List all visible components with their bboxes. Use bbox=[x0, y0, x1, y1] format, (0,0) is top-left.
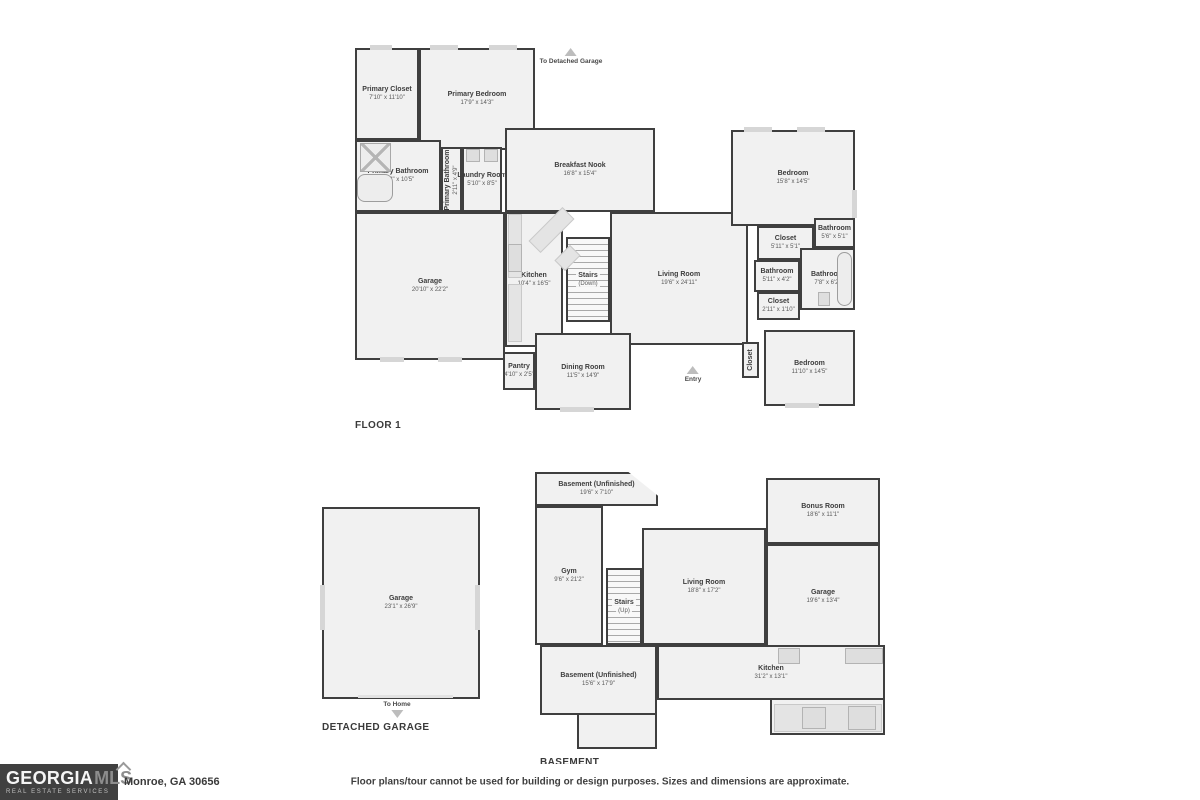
room-name-label: Primary Bedroom bbox=[448, 91, 507, 99]
room-breakfast-nook: Breakfast Nook16'8" x 15'4" bbox=[505, 128, 655, 212]
room-bathroom: Bathroom5'11" x 4'2" bbox=[754, 260, 800, 292]
room-name-label: Laundry Room bbox=[457, 172, 506, 180]
window-mark bbox=[560, 407, 594, 412]
room-name-label: Closet bbox=[775, 235, 796, 243]
room-name-label: Closet bbox=[768, 298, 789, 306]
room-pantry: Pantry4'10" x 2'5" bbox=[503, 352, 535, 390]
logo-text-georgia: GEORGIA bbox=[6, 769, 93, 787]
annotation-to-home: To Home bbox=[383, 701, 410, 718]
room-name-label: Kitchen bbox=[521, 272, 547, 280]
window-mark bbox=[320, 585, 325, 630]
door-line-fixture bbox=[358, 695, 453, 698]
room-dimensions-label: 11'5" x 14'9" bbox=[567, 373, 599, 380]
room-dimensions-label: 5'6" x 5'1" bbox=[821, 234, 847, 241]
appliance-fixture bbox=[802, 707, 826, 729]
room-dimensions-label: 7'10" x 11'10" bbox=[369, 95, 405, 102]
room-garage: Garage20'10" x 22'2" bbox=[355, 212, 505, 360]
window-mark bbox=[852, 190, 857, 218]
room-dimensions-label: 31'2" x 13'1" bbox=[755, 674, 788, 681]
room-dimensions-label: 5'11" x 5'1" bbox=[771, 244, 800, 251]
room-name-label: Living Room bbox=[658, 271, 700, 279]
appliance-fixture bbox=[508, 244, 522, 272]
room-bedroom: Bedroom15'8" x 14'5" bbox=[731, 130, 855, 226]
logo-subtitle: REAL ESTATE SERVICES bbox=[6, 789, 112, 795]
window-mark bbox=[438, 357, 462, 362]
annotation-entry: Entry bbox=[685, 366, 702, 383]
room-dimensions-label: 19'6" x 7'10" bbox=[580, 490, 613, 497]
room-name-label: Closet bbox=[746, 349, 754, 370]
room-basement-unfinished: Basement (Unfinished)19'6" x 7'10" bbox=[535, 472, 658, 506]
room-living-room: Living Room19'6" x 24'11" bbox=[610, 212, 748, 345]
room-dimensions-label: (Up) bbox=[616, 608, 632, 615]
room-name-label: Bathroom bbox=[818, 225, 851, 233]
room-dimensions-label: 19'6" x 24'11" bbox=[661, 280, 697, 287]
window-mark bbox=[785, 403, 819, 408]
room-name-label: Garage bbox=[418, 278, 442, 286]
room-name-label: Kitchen bbox=[758, 665, 784, 673]
room-dimensions-label: 18'8" x 17'2" bbox=[688, 588, 721, 595]
window-mark bbox=[475, 585, 480, 630]
room-closet: Closet2'11" x 1'10" bbox=[757, 292, 800, 320]
room-name-label: Gym bbox=[561, 568, 577, 576]
room-dimensions-label: 10'4" x 16'5" bbox=[518, 281, 551, 288]
room-primary-closet: Primary Closet7'10" x 11'10" bbox=[355, 48, 419, 140]
room-dimensions-label: 11'10" x 14'5" bbox=[792, 369, 828, 376]
room-name-label: Stairs bbox=[612, 599, 635, 607]
footer-bar: GEORGIA MLS REAL ESTATE SERVICES Monroe,… bbox=[0, 764, 1200, 800]
room-dimensions-label: 16'8" x 15'4" bbox=[564, 171, 597, 178]
room-dimensions-label: 5'10" x 8'5" bbox=[467, 181, 497, 188]
window-mark bbox=[380, 357, 404, 362]
appliance-fixture bbox=[818, 292, 830, 306]
room-name-label: Garage bbox=[389, 595, 413, 603]
floor-label-detached-garage: DETACHED GARAGE bbox=[322, 722, 429, 733]
georgia-mls-logo: GEORGIA MLS REAL ESTATE SERVICES bbox=[0, 764, 118, 800]
room-name-label: Primary Closet bbox=[362, 86, 411, 94]
floorplan-canvas: FLOOR 1Primary Closet7'10" x 11'10"Prima… bbox=[0, 0, 1200, 800]
up-arrow-icon bbox=[687, 366, 699, 374]
down-arrow-icon bbox=[391, 710, 403, 718]
room-name-label: Stairs bbox=[576, 272, 599, 280]
room-name-label: Garage bbox=[811, 589, 835, 597]
room-dimensions-label: 20'10" x 22'2" bbox=[412, 287, 448, 294]
appliance-fixture bbox=[778, 648, 800, 664]
room-name-label: Primary Bathroom bbox=[444, 149, 452, 210]
room-dining-room: Dining Room11'5" x 14'9" bbox=[535, 333, 631, 410]
window-mark bbox=[430, 45, 458, 50]
room-name-label: Bonus Room bbox=[801, 503, 845, 511]
room-name-label: Basement (Unfinished) bbox=[558, 481, 634, 489]
room-gym: Gym9'6" x 21'2" bbox=[535, 506, 603, 645]
room-basement-unfinished: Basement (Unfinished)15'6" x 17'9" bbox=[540, 645, 657, 715]
room-dimensions-label: 17'9" x 14'3" bbox=[461, 100, 494, 107]
room-name-label: Bathroom bbox=[760, 268, 793, 276]
up-arrow-icon bbox=[565, 48, 577, 56]
appliance-fixture bbox=[484, 149, 498, 162]
room-name-label: Dining Room bbox=[561, 364, 605, 372]
room-bathroom: Bathroom5'6" x 5'1" bbox=[814, 218, 855, 248]
window-mark bbox=[744, 127, 772, 132]
disclaimer-text: Floor plans/tour cannot be used for buil… bbox=[351, 777, 849, 788]
window-mark bbox=[489, 45, 517, 50]
property-address: Monroe, GA 30656 bbox=[124, 776, 220, 788]
room-name-label: Bedroom bbox=[778, 170, 809, 178]
room-name-label: Bedroom bbox=[794, 360, 825, 368]
tub-fixture bbox=[357, 174, 393, 202]
room-dimensions-label: 15'8" x 14'5" bbox=[777, 179, 810, 186]
annotation-text: To Detached Garage bbox=[540, 58, 603, 65]
room-name-label: Basement (Unfinished) bbox=[560, 672, 636, 680]
room-closet: Closet bbox=[742, 342, 759, 378]
room-name-label: Breakfast Nook bbox=[554, 162, 605, 170]
room-name-label: Pantry bbox=[508, 363, 530, 371]
room-dimensions-label: 15'6" x 17'9" bbox=[582, 681, 615, 688]
annotation-text: Entry bbox=[685, 376, 702, 383]
counter-fixture bbox=[508, 284, 522, 342]
room-dimensions-label: 18'6" x 11'1" bbox=[807, 512, 839, 519]
room-dimensions-label: 9'6" x 21'2" bbox=[554, 577, 584, 584]
room-bonus-room: Bonus Room18'6" x 11'1" bbox=[766, 478, 880, 544]
room-dimensions-label: (Down) bbox=[576, 281, 599, 288]
room-bedroom: Bedroom11'10" x 14'5" bbox=[764, 330, 855, 406]
window-mark bbox=[797, 127, 825, 132]
appliance-fixture bbox=[845, 648, 883, 664]
room-name-label: Living Room bbox=[683, 579, 725, 587]
shower-fixture bbox=[360, 143, 391, 172]
room-dimensions-label: 23'1" x 26'9" bbox=[385, 604, 418, 611]
room-dimensions-label: 5'11" x 4'2" bbox=[762, 277, 791, 284]
room-dimensions-label: 19'6" x 13'4" bbox=[807, 598, 840, 605]
annotation-text: To Home bbox=[383, 701, 410, 708]
appliance-fixture bbox=[466, 149, 480, 162]
room-garage: Garage23'1" x 26'9" bbox=[322, 507, 480, 699]
room-living-room: Living Room18'8" x 17'2" bbox=[642, 528, 766, 645]
room-dimensions-label: 4'10" x 2'5" bbox=[504, 372, 534, 379]
window-mark bbox=[370, 45, 392, 50]
tub-fixture bbox=[837, 252, 852, 306]
ext-fixture bbox=[577, 713, 657, 749]
room-garage: Garage19'6" x 13'4" bbox=[766, 544, 880, 650]
annotation-to-detached-garage: To Detached Garage bbox=[540, 48, 603, 65]
room-stairs: Stairs(Up) bbox=[606, 568, 642, 645]
appliance-fixture bbox=[848, 706, 876, 730]
room-dimensions-label: 2'11" x 1'10" bbox=[762, 307, 794, 314]
floor-label-floor-1: FLOOR 1 bbox=[355, 420, 401, 431]
